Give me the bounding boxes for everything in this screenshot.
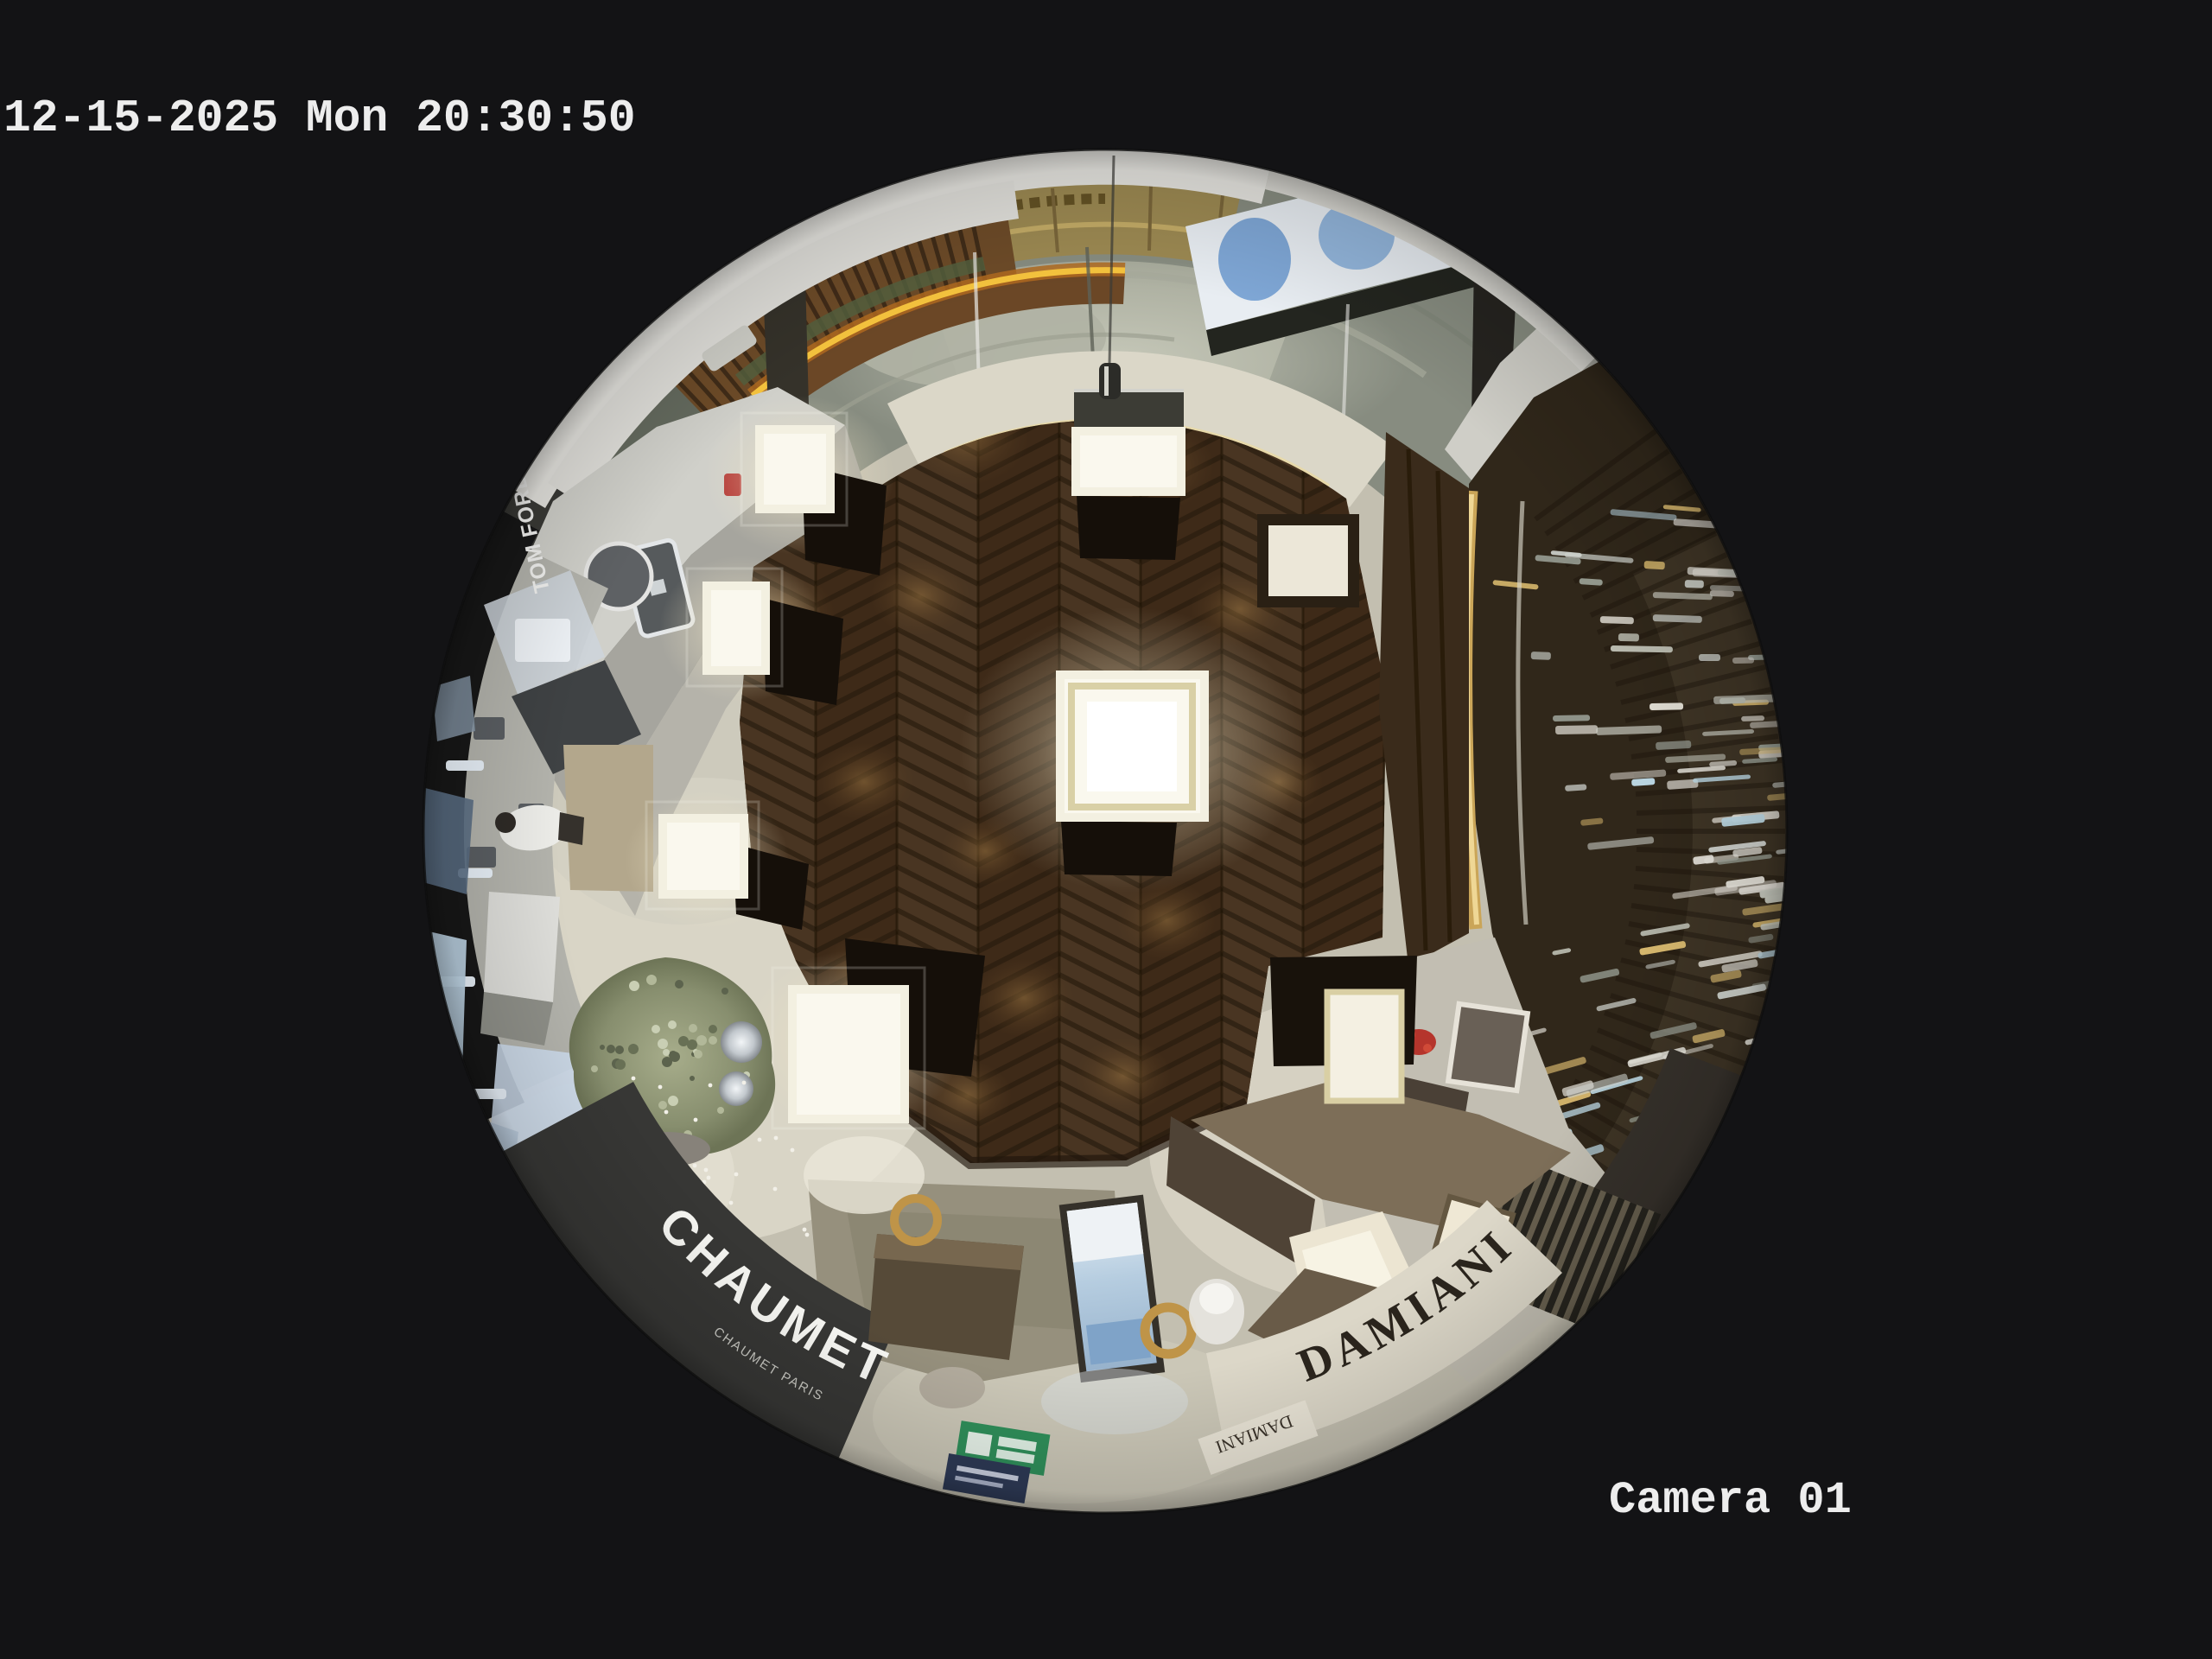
svg-text:12-15-2025 Mon 20:30:50: 12-15-2025 Mon 20:30:50 <box>3 92 636 144</box>
svg-text:Camera 01: Camera 01 <box>1609 1475 1852 1526</box>
